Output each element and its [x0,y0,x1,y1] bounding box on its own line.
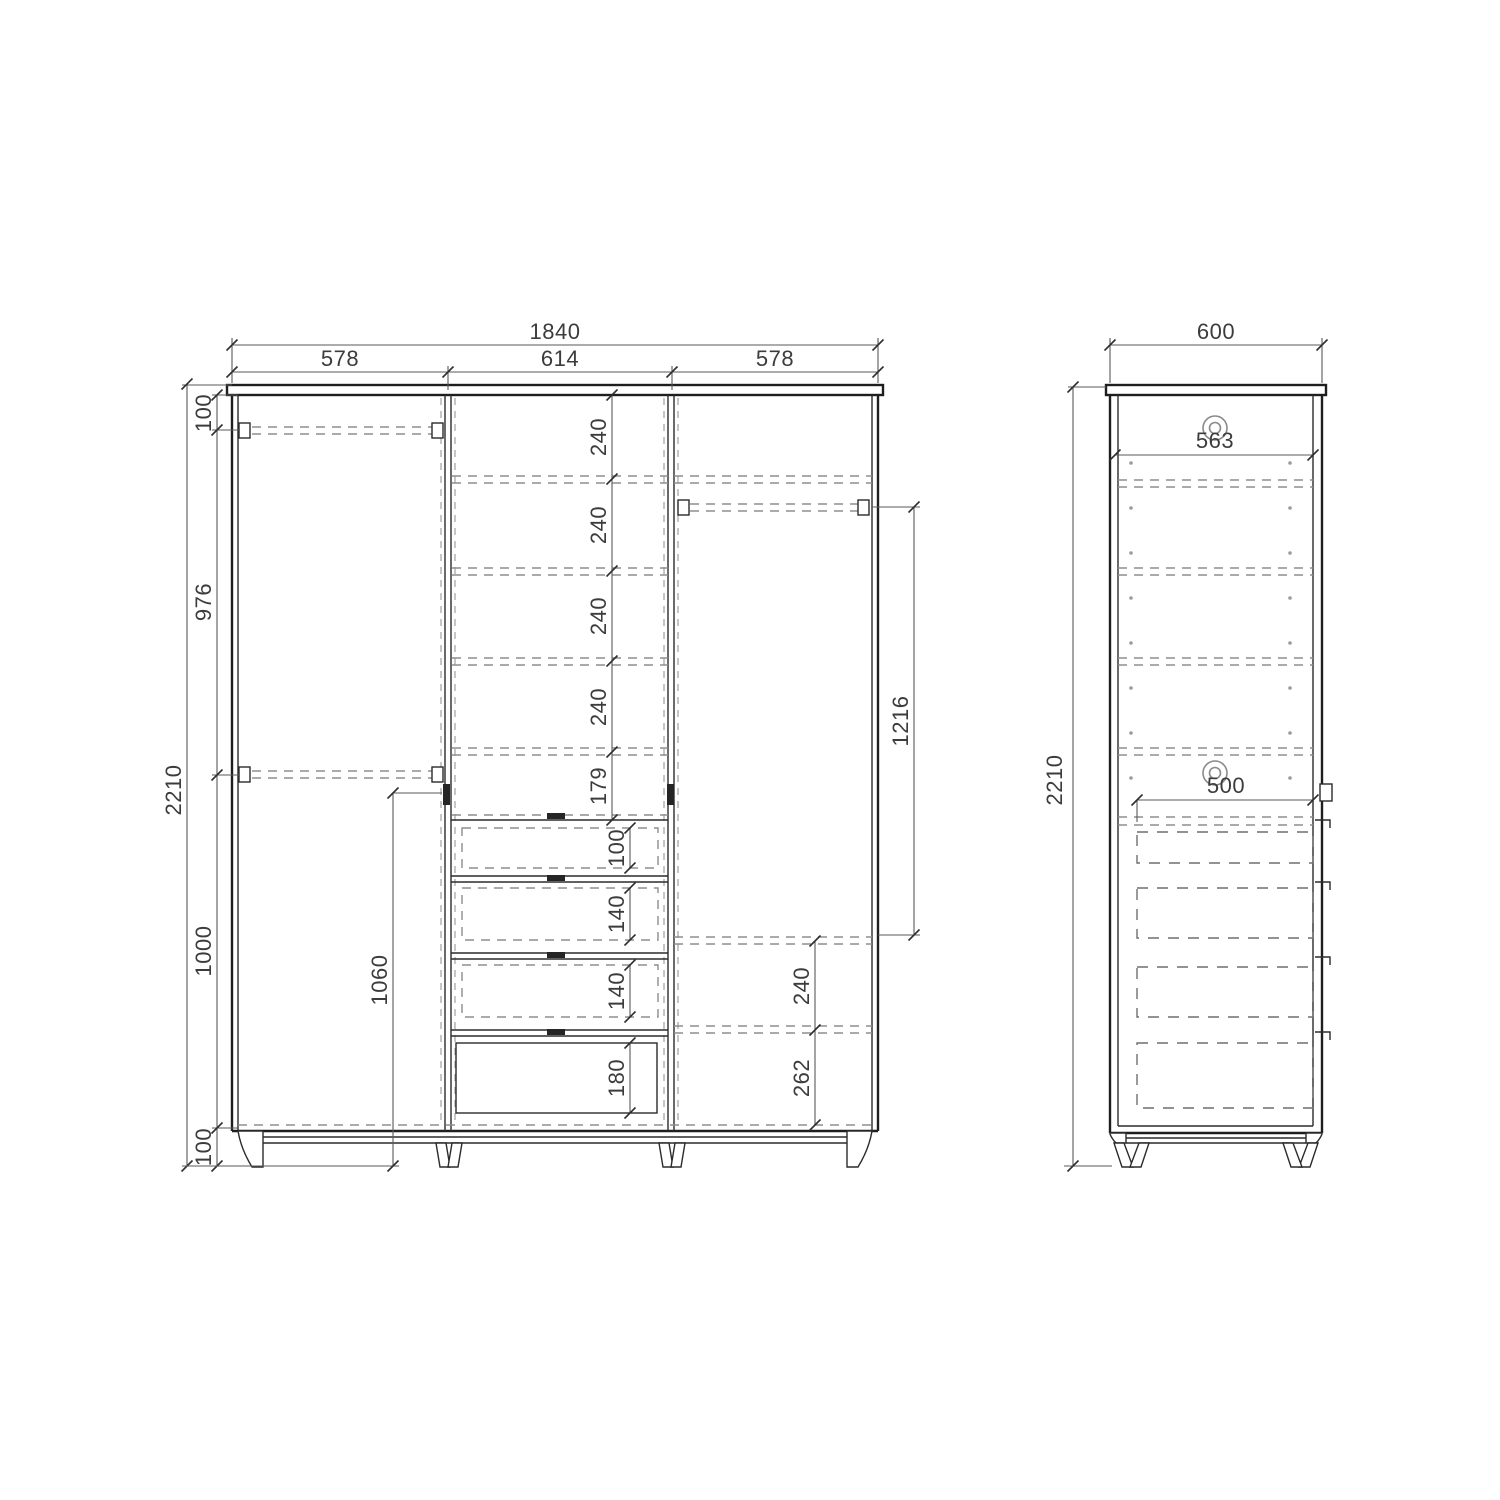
dim-rail-to-shelf: 1216 [888,696,913,747]
dim-drawer-depth: 500 [1207,773,1245,798]
dim-shelf-bottom: 179 [586,767,611,805]
dim-interior-depth: 563 [1196,428,1234,453]
side-outline [1106,385,1326,1133]
dim-shelf-2: 240 [586,506,611,544]
dim-drawer-4: 180 [604,1059,629,1097]
hinges [443,784,674,805]
rail-sections [1203,416,1227,785]
dim-base-height: 100 [191,1128,216,1166]
side-base-legs [1110,1133,1322,1167]
dim-right-bottom-gap: 262 [789,1059,814,1097]
dim-overall-height-side: 2210 [1042,755,1067,806]
pin-holes [1129,461,1292,780]
dim-section-left: 578 [321,346,359,371]
dim-shelf-4: 240 [586,688,611,726]
door-handle [1320,784,1332,801]
dim-lower-section: 1000 [191,926,216,977]
drawers [451,813,668,1113]
side-drawers [1137,832,1313,1108]
dim-right-shelf-gap: 240 [789,967,814,1005]
hanging-rails [239,423,869,782]
door-edges [441,398,678,1124]
dim-overall-height-front: 2210 [161,765,186,816]
dim-drawer-1: 100 [604,829,629,867]
dim-upper-section: 976 [191,583,216,621]
dim-drawer-2: 140 [604,895,629,933]
front-view: 1840 578 614 578 2210 100 976 1000 100 2… [161,319,920,1172]
dim-shelf-1: 240 [586,418,611,456]
side-dimensions [1064,338,1328,1172]
dim-overall-depth: 600 [1197,319,1235,344]
shelves [238,476,872,1125]
technical-drawing: 1840 578 614 578 2210 100 976 1000 100 2… [0,0,1500,1500]
base-legs [238,1131,872,1167]
dim-drawer-3: 140 [604,972,629,1010]
dim-overall-width: 1840 [530,319,581,344]
dim-section-mid: 614 [541,346,579,371]
dim-hinge-height: 1060 [367,955,392,1006]
cabinet-outline [227,385,883,1131]
drawing-canvas: 1840 578 614 578 2210 100 976 1000 100 2… [0,0,1500,1500]
dim-top-offset: 100 [191,394,216,432]
dim-section-right: 578 [756,346,794,371]
dim-shelf-3: 240 [586,597,611,635]
side-view: 600 563 500 2210 [1042,319,1332,1172]
